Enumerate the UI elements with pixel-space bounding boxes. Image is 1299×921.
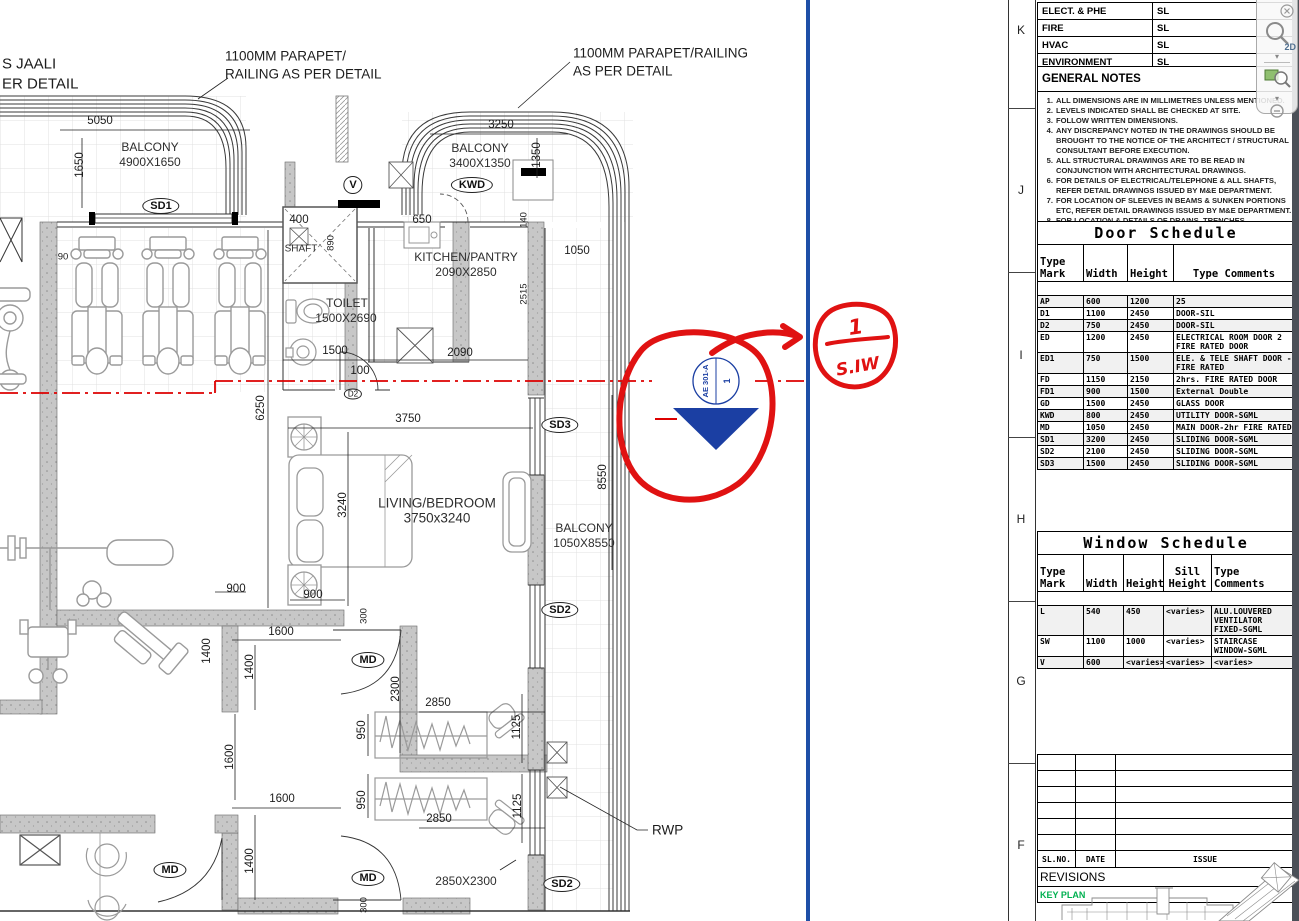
table-cell (1076, 835, 1116, 851)
table-row: SD315002450SLIDING DOOR-SGML (1038, 458, 1295, 470)
table-cell: ELECTRICAL ROOM DOOR 2 FIRE RATED DOOR (1174, 332, 1295, 353)
column-header: Sill Height (1164, 555, 1212, 592)
table-cell: 750 (1084, 353, 1128, 374)
table-cell: MD (1038, 422, 1084, 434)
table-cell: AP (1038, 296, 1084, 308)
column-header: DATE (1076, 851, 1116, 868)
revision-table: SL.NO. DATE ISSUE REVISIONS KEY PLAN (1037, 754, 1295, 903)
column-header: Type Mark (1038, 245, 1084, 282)
grid-letter: K (1017, 23, 1025, 37)
table-cell (1076, 803, 1116, 819)
table-row: FD115021502hrs. FIRE RATED DOOR (1038, 374, 1295, 386)
section-marker[interactable]: AE 301-A 1 (673, 358, 759, 450)
steering-wheel-2d-icon[interactable]: 2D (1262, 20, 1292, 52)
table-cell: 2450 (1128, 332, 1174, 353)
note-number: 2. (1040, 106, 1053, 116)
table-cell (1038, 755, 1076, 771)
table-row: D27502450DOOR-SIL (1038, 320, 1295, 332)
table-cell: <varies> (1164, 657, 1212, 669)
grid-tick (1008, 763, 1035, 764)
table-cell: 600 (1084, 657, 1124, 669)
table-cell (1116, 819, 1295, 835)
note-number: 7. (1040, 196, 1053, 216)
table-cell: <varies> (1164, 606, 1212, 636)
table-cell (1116, 835, 1295, 851)
shaft (283, 207, 357, 283)
table-cell: MAIN DOOR-2hr FIRE RATED (1174, 422, 1295, 434)
table-row: SD132002450SLIDING DOOR-SGML (1038, 434, 1295, 446)
table-cell: FD (1038, 374, 1084, 386)
table-cell (1038, 771, 1076, 787)
table-cell: D2 (1038, 320, 1084, 332)
table-cell: 1500 (1128, 386, 1174, 398)
note-number: 5. (1040, 156, 1053, 176)
table-cell: 1200 (1128, 296, 1174, 308)
toolbar-divider (1264, 62, 1290, 63)
doors (158, 630, 401, 902)
table-row: SD221002450SLIDING DOOR-SGML (1038, 446, 1295, 458)
table-cell: 1100 (1084, 308, 1128, 320)
table-cell: 1500 (1084, 458, 1128, 470)
table-cell (1116, 755, 1295, 771)
note-text: FOR LOCATION OF SLEEVES IN BEAMS & SUNKE… (1056, 196, 1292, 216)
table-cell (1076, 755, 1116, 771)
table-cell: 1000 (1124, 636, 1164, 657)
table-cell: 2150 (1128, 374, 1174, 386)
table-row: KWD8002450UTILITY DOOR-SGML (1038, 410, 1295, 422)
window-schedule-title: Window Schedule (1038, 532, 1295, 555)
table-row: L540450<varies>ALU.LOUVERED VENTILATOR F… (1038, 606, 1295, 636)
table-cell: 2450 (1128, 458, 1174, 470)
table-cell: 1200 (1084, 332, 1128, 353)
table-cell: GD (1038, 398, 1084, 410)
table-cell: 1500 (1084, 398, 1128, 410)
table-cell: D1 (1038, 308, 1084, 320)
lobby-furniture (20, 833, 126, 920)
table-cell: <varies> (1212, 657, 1295, 669)
table-cell: L (1038, 606, 1084, 636)
table-row (1038, 787, 1295, 803)
table-cell: 2450 (1128, 434, 1174, 446)
table-row (1038, 282, 1295, 296)
table-row: KEY PLAN (1038, 887, 1295, 903)
table-cell: ELECT. & PHE (1038, 3, 1153, 20)
note-item: 5.ALL STRUCTURAL DRAWINGS ARE TO BE READ… (1040, 156, 1292, 176)
section-marker-number: 1 (722, 378, 732, 383)
chevron-down-icon[interactable]: ▾ (1275, 95, 1279, 102)
grid-tick (1008, 108, 1035, 109)
table-row (1038, 755, 1295, 771)
table-row: ED17501500ELE. & TELE SHAFT DOOR - FIRE … (1038, 353, 1295, 374)
sheet-border-line (1008, 0, 1009, 921)
table-cell (1038, 803, 1076, 819)
table-row: Door Schedule (1038, 222, 1295, 245)
table-row: D111002450DOOR-SIL (1038, 308, 1295, 320)
grid-letter: H (1017, 512, 1026, 526)
table-cell: HVAC (1038, 37, 1153, 54)
column-header: Height (1124, 555, 1164, 592)
table-cell: ED (1038, 332, 1084, 353)
cad-viewer-canvas: AE 301-A 1 S JAALIER DETAIL1100MM PARAPE… (0, 0, 1299, 921)
table-cell: SD3 (1038, 458, 1084, 470)
table-cell: 1100 (1084, 636, 1124, 657)
table-cell: <varies> (1124, 657, 1164, 669)
table-cell: SD1 (1038, 434, 1084, 446)
note-item: 3.FOLLOW WRITTEN DIMENSIONS. (1040, 116, 1292, 126)
note-item: 1.ALL DIMENSIONS ARE IN MILLIMETRES UNLE… (1040, 96, 1292, 106)
close-icon[interactable] (1279, 3, 1295, 19)
table-cell: 2450 (1128, 410, 1174, 422)
grid-letter: G (1016, 674, 1025, 688)
zoom-window-icon[interactable] (1264, 66, 1291, 94)
column-header: Width (1084, 245, 1128, 282)
revisions-label: REVISIONS (1038, 868, 1295, 887)
column-header: Type Comments (1174, 245, 1295, 282)
note-item: 7.FOR LOCATION OF SLEEVES IN BEAMS & SUN… (1040, 196, 1292, 216)
table-row: Type Mark Width Height Sill Height Type … (1038, 555, 1295, 592)
table-cell: ED1 (1038, 353, 1084, 374)
table-cell: FIRE (1038, 20, 1153, 37)
table-row: MD10502450MAIN DOOR-2hr FIRE RATED (1038, 422, 1295, 434)
table-cell: STAIRCASE WINDOW-SGML (1212, 636, 1295, 657)
table-row: GD15002450GLASS DOOR (1038, 398, 1295, 410)
table-cell: SD2 (1038, 446, 1084, 458)
door-schedule: Door Schedule Type Mark Width Height Typ… (1037, 221, 1295, 470)
table-cell (1038, 819, 1076, 835)
table-cell: GLASS DOOR (1174, 398, 1295, 410)
grid-tick (1008, 437, 1035, 438)
titleblock-border-line (1035, 0, 1036, 921)
table-cell: 2450 (1128, 422, 1174, 434)
column-header: ISSUE (1116, 851, 1295, 868)
table-cell: 2450 (1128, 398, 1174, 410)
table-cell: ALU.LOUVERED VENTILATOR FIXED-SGML (1212, 606, 1295, 636)
table-cell: 450 (1124, 606, 1164, 636)
door-schedule-title: Door Schedule (1038, 222, 1295, 245)
note-number: 3. (1040, 116, 1053, 126)
grid-tick (1008, 601, 1035, 602)
table-row: Window Schedule (1038, 532, 1295, 555)
table-cell: SLIDING DOOR-SGML (1174, 446, 1295, 458)
grid-letter: I (1019, 348, 1022, 362)
table-cell: 1050 (1084, 422, 1128, 434)
section-marker-sheet: AE 301-A (701, 364, 710, 398)
note-text: ALL STRUCTURAL DRAWINGS ARE TO BE READ I… (1056, 156, 1292, 176)
table-cell: SW (1038, 636, 1084, 657)
table-cell: 25 (1174, 296, 1295, 308)
table-row: V600<varies><varies><varies> (1038, 657, 1295, 669)
grid-letter: F (1017, 838, 1024, 852)
table-cell: DOOR-SIL (1174, 320, 1295, 332)
view-crop-line (806, 0, 810, 921)
note-text: LEVELS INDICATED SHALL BE CHECKED AT SIT… (1056, 106, 1241, 116)
wheel-2d-label: 2D (1284, 42, 1296, 52)
note-text: ANY DISCREPANCY NOTED IN THE DRAWINGS SH… (1056, 126, 1292, 156)
table-cell: 540 (1084, 606, 1124, 636)
chevron-down-icon[interactable]: ▾ (1275, 53, 1279, 60)
table-row: ED12002450ELECTRICAL ROOM DOOR 2 FIRE RA… (1038, 332, 1295, 353)
table-cell (1038, 787, 1076, 803)
table-cell: SLIDING DOOR-SGML (1174, 434, 1295, 446)
note-number: 1. (1040, 96, 1053, 106)
zoom-out-icon[interactable] (1268, 103, 1286, 124)
column-header: SL.NO. (1038, 851, 1076, 868)
table-row: SW11001000<varies>STAIRCASE WINDOW-SGML (1038, 636, 1295, 657)
note-number: 4. (1040, 126, 1053, 156)
note-item: 6.FOR DETAILS OF ELECTRICAL/TELEPHONE & … (1040, 176, 1292, 196)
table-cell: 2450 (1128, 320, 1174, 332)
table-cell: UTILITY DOOR-SGML (1174, 410, 1295, 422)
sliding-door-tracks (528, 398, 544, 855)
table-cell: 2450 (1128, 308, 1174, 320)
table-cell: External Double (1174, 386, 1295, 398)
table-cell: 3200 (1084, 434, 1128, 446)
table-cell: SLIDING DOOR-SGML (1174, 458, 1295, 470)
table-cell: 600 (1084, 296, 1128, 308)
bedroom-furniture (288, 417, 531, 605)
grid-tick (1008, 272, 1035, 273)
canvas-edge (1292, 0, 1299, 921)
table-row: FD19001500External Double (1038, 386, 1295, 398)
column-header: Width (1084, 555, 1124, 592)
table-cell: 900 (1084, 386, 1128, 398)
table-cell (1076, 771, 1116, 787)
grid-letter: J (1018, 183, 1024, 197)
table-cell: FD1 (1038, 386, 1084, 398)
key-plan-label: KEY PLAN (1038, 887, 1295, 903)
table-cell: 1150 (1084, 374, 1128, 386)
table-row: SL.NO. DATE ISSUE (1038, 851, 1295, 868)
column-header: Type Comments (1212, 555, 1295, 592)
note-text: FOR DETAILS OF ELECTRICAL/TELEPHONE & AL… (1056, 176, 1292, 196)
table-cell: 2hrs. FIRE RATED DOOR (1174, 374, 1295, 386)
table-cell: <varies> (1164, 636, 1212, 657)
table-row (1038, 819, 1295, 835)
table-cell (1116, 771, 1295, 787)
note-text: ALL DIMENSIONS ARE IN MILLIMETRES UNLESS… (1056, 96, 1285, 106)
table-cell: 2450 (1128, 446, 1174, 458)
column-header: Height (1128, 245, 1174, 282)
table-cell (1076, 819, 1116, 835)
window-schedule: Window Schedule Type Mark Width Height S… (1037, 531, 1295, 669)
note-text: FOLLOW WRITTEN DIMENSIONS. (1056, 116, 1178, 126)
table-row: Type Mark Width Height Type Comments (1038, 245, 1295, 282)
column-header: Type Mark (1038, 555, 1084, 592)
table-row (1038, 803, 1295, 819)
table-cell (1116, 803, 1295, 819)
table-cell (1076, 787, 1116, 803)
table-cell: ELE. & TELE SHAFT DOOR - FIRE RATED (1174, 353, 1295, 374)
table-cell: DOOR-SIL (1174, 308, 1295, 320)
table-cell: 2100 (1084, 446, 1128, 458)
table-cell: 1500 (1128, 353, 1174, 374)
table-row (1038, 835, 1295, 851)
floor-plan-drawing: AE 301-A 1 (0, 0, 1010, 921)
note-item: 4.ANY DISCREPANCY NOTED IN THE DRAWINGS … (1040, 126, 1292, 156)
table-row: AP600120025 (1038, 296, 1295, 308)
table-row (1038, 592, 1295, 606)
navigation-toolbar: 2D ▾ ▾ (1256, 0, 1298, 114)
table-cell: V (1038, 657, 1084, 669)
note-number: 6. (1040, 176, 1053, 196)
table-cell: 750 (1084, 320, 1128, 332)
table-cell (1038, 835, 1076, 851)
table-cell (1116, 787, 1295, 803)
table-row: REVISIONS (1038, 868, 1295, 887)
table-cell: KWD (1038, 410, 1084, 422)
note-item: 2.LEVELS INDICATED SHALL BE CHECKED AT S… (1040, 106, 1292, 116)
table-row (1038, 771, 1295, 787)
table-cell: 800 (1084, 410, 1128, 422)
